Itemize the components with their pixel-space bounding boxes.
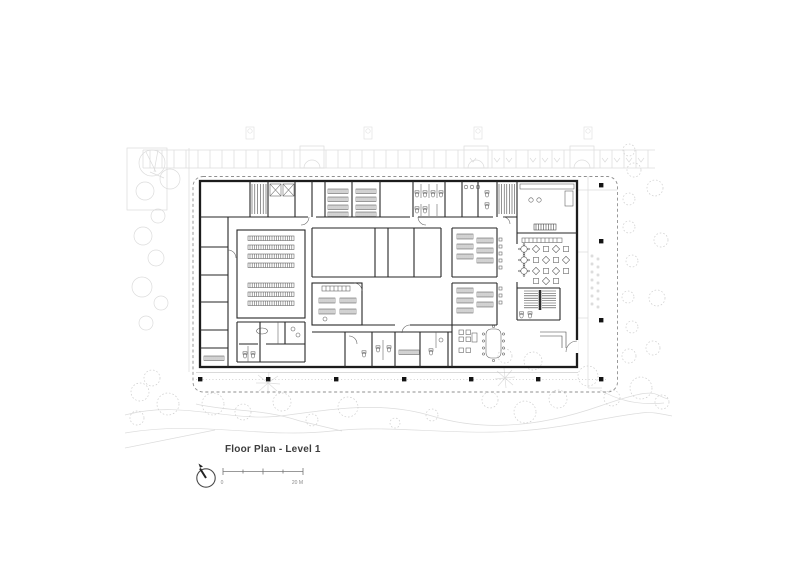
colonnade-columns bbox=[198, 183, 603, 381]
stairs bbox=[252, 184, 556, 318]
scale-start-label: 0 bbox=[221, 480, 224, 486]
scale-end-label: 20 M bbox=[292, 480, 303, 486]
plan-title: Floor Plan - Level 1 bbox=[225, 444, 321, 455]
planting-strip bbox=[590, 254, 599, 308]
floor-plan-sheet: Floor Plan - Level 1 0 20 M bbox=[0, 0, 800, 565]
scale-bar: 0 20 M bbox=[221, 468, 303, 486]
context-landscape-layer bbox=[125, 127, 672, 448]
floor-plan-drawing: Floor Plan - Level 1 0 20 M bbox=[0, 0, 800, 565]
building-walls bbox=[200, 181, 578, 367]
north-arrow-icon bbox=[197, 464, 215, 488]
